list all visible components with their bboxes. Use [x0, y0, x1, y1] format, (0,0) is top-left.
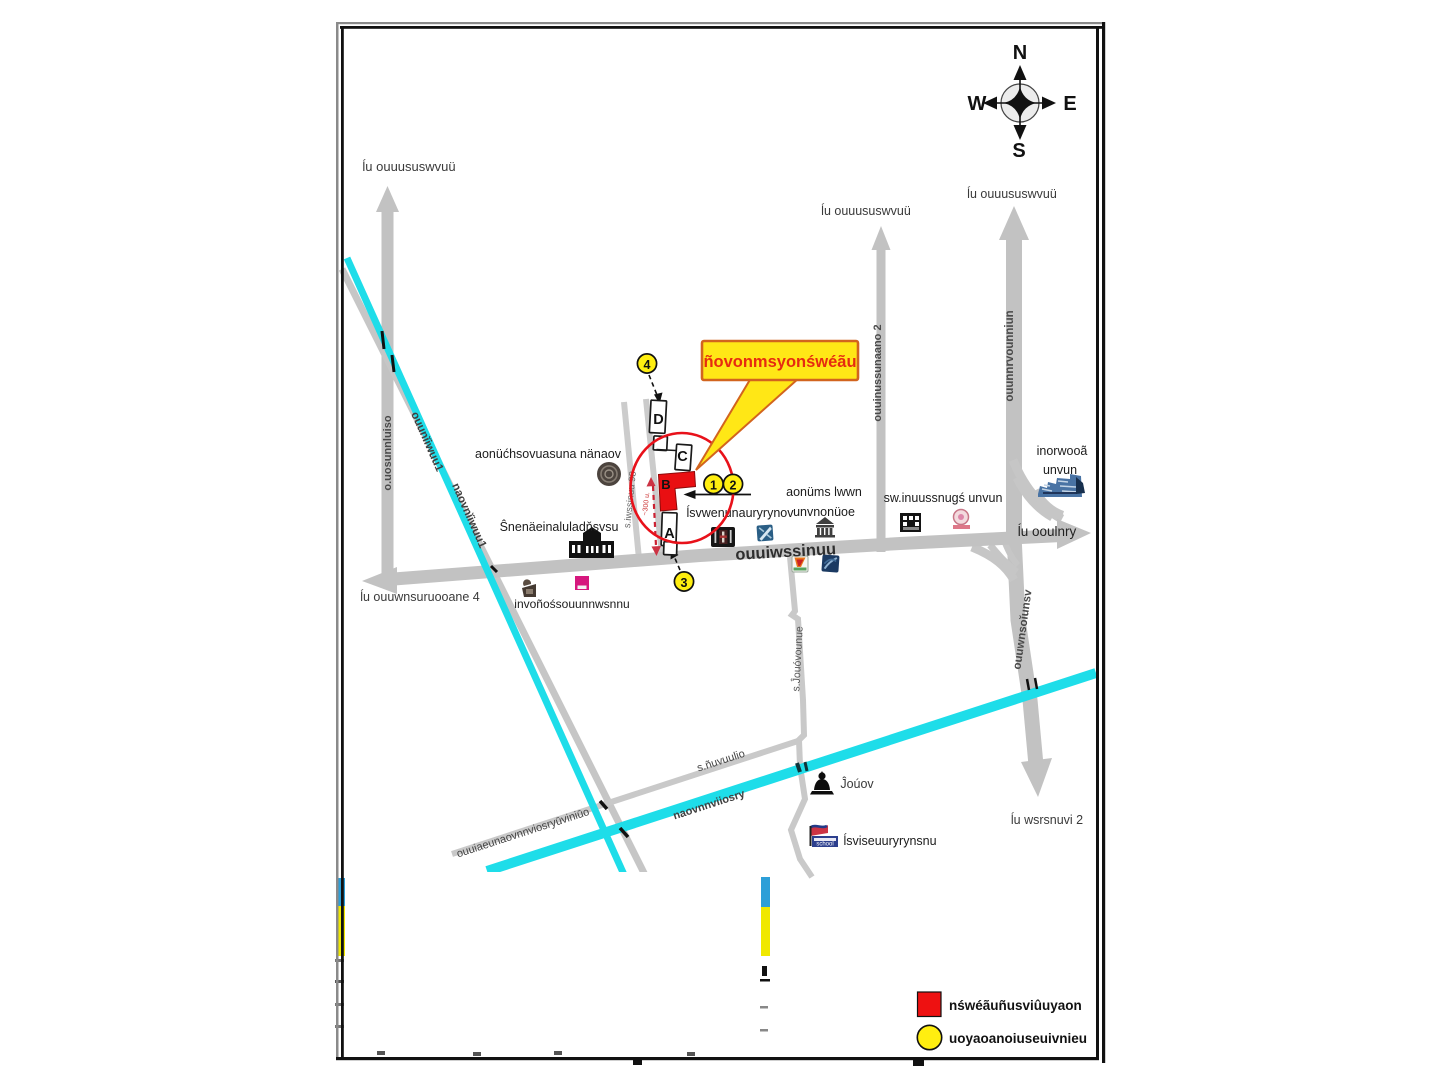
svg-text:Ĵoúov: Ĵoúov [840, 776, 874, 791]
svg-text:Ŝnenäeinaluladňsvsu: Ŝnenäeinaluladňsvsu [500, 519, 619, 534]
svg-text:unvun: unvun [1043, 463, 1077, 477]
svg-text:ĺu ouuususwvuü: ĺu ouuususwvuü [362, 159, 455, 174]
svg-text:ĺu wsrsnuvi 2: ĺu wsrsnuvi 2 [1011, 812, 1083, 827]
svg-text:ĺu ooulnry: ĺu ooulnry [1018, 524, 1077, 539]
svg-text:2: 2 [730, 479, 737, 493]
svg-text:ouuinussunaano 2: ouuinussunaano 2 [872, 324, 884, 421]
svg-text:E: E [1063, 93, 1076, 115]
svg-text:ĺu ouuususwvuü: ĺu ouuususwvuü [821, 203, 911, 218]
svg-text:o.uosunnluiso: o.uosunnluiso [382, 415, 394, 490]
svg-text:ouunnrvounniun: ouunnrvounniun [1004, 310, 1016, 401]
svg-text:W: W [968, 93, 987, 115]
svg-text:inorwooã: inorwooã [1037, 444, 1088, 458]
svg-text:aonüms lwwn: aonüms lwwn [786, 485, 862, 499]
svg-text:4: 4 [644, 358, 651, 372]
svg-text:D: D [653, 412, 663, 428]
svg-text:3: 3 [681, 576, 688, 590]
svg-text:unvnonüoe: unvnonüoe [793, 505, 855, 519]
svg-text:sw.inuussnugś unvun: sw.inuussnugś unvun [884, 491, 1003, 505]
svg-text:school: school [816, 842, 833, 848]
svg-text:ĺsvwenunauryrynov: ĺsvwenunauryrynov [687, 505, 795, 520]
svg-text:aonüćhsovuasuna nänaov: aonüćhsovuasuna nänaov [475, 447, 622, 461]
svg-text:ĺu ouuususwvuü: ĺu ouuususwvuü [967, 186, 1057, 201]
svg-text:ñovonmsyonśwéãu: ñovonmsyonśwéãu [703, 353, 856, 371]
svg-text:B: B [661, 477, 670, 492]
svg-text:N: N [1013, 42, 1027, 64]
svg-text:nśwéãuñusviûuyaon: nśwéãuñusviûuyaon [949, 998, 1082, 1013]
svg-text:S: S [1012, 140, 1025, 162]
svg-text:ĺu ouuwnsuruooane 4: ĺu ouuwnsuruooane 4 [360, 589, 480, 604]
svg-text:ĺsviseuuryrynsnu: ĺsviseuuryrynsnu [843, 833, 936, 848]
svg-text:1: 1 [710, 479, 717, 493]
svg-text:C: C [677, 449, 688, 465]
svg-text:invoñośsouunnwsnnu: invoñośsouunnwsnnu [514, 597, 629, 611]
svg-text:uoyaoanoiuseuivnieu: uoyaoanoiuseuivnieu [949, 1031, 1087, 1046]
